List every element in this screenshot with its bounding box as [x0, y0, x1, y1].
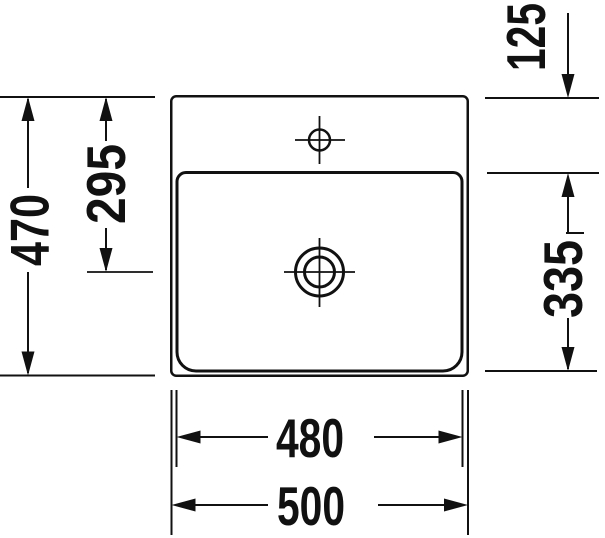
dimension-label-right-top: 125: [495, 3, 557, 71]
arrowhead-right-500: [444, 499, 468, 512]
dimension-label-left-inner: 295: [75, 144, 137, 224]
arrowhead-left-480: [177, 431, 201, 444]
dimension-label-left-outer: 470: [0, 194, 60, 266]
arrowhead-up-335: [562, 173, 575, 197]
arrowhead-down-295: [100, 248, 113, 272]
arrowhead-down-470: [22, 352, 35, 376]
arrowhead-down-335: [562, 347, 575, 371]
arrowhead-left-500: [172, 499, 196, 512]
washbasin-technical-drawing: 470 295 125 335 480 500: [0, 0, 605, 538]
dimension-label-bottom-outer: 500: [277, 475, 345, 537]
drawing-canvas: 470 295 125 335 480 500: [0, 0, 605, 538]
dimension-label-bottom-inner: 480: [276, 407, 344, 469]
arrowhead-down-125: [562, 74, 575, 98]
arrowhead-up-295: [100, 97, 113, 121]
arrowhead-right-480: [439, 431, 463, 444]
arrowhead-up-470: [22, 97, 35, 121]
dimension-label-right-bottom: 335: [532, 240, 594, 318]
